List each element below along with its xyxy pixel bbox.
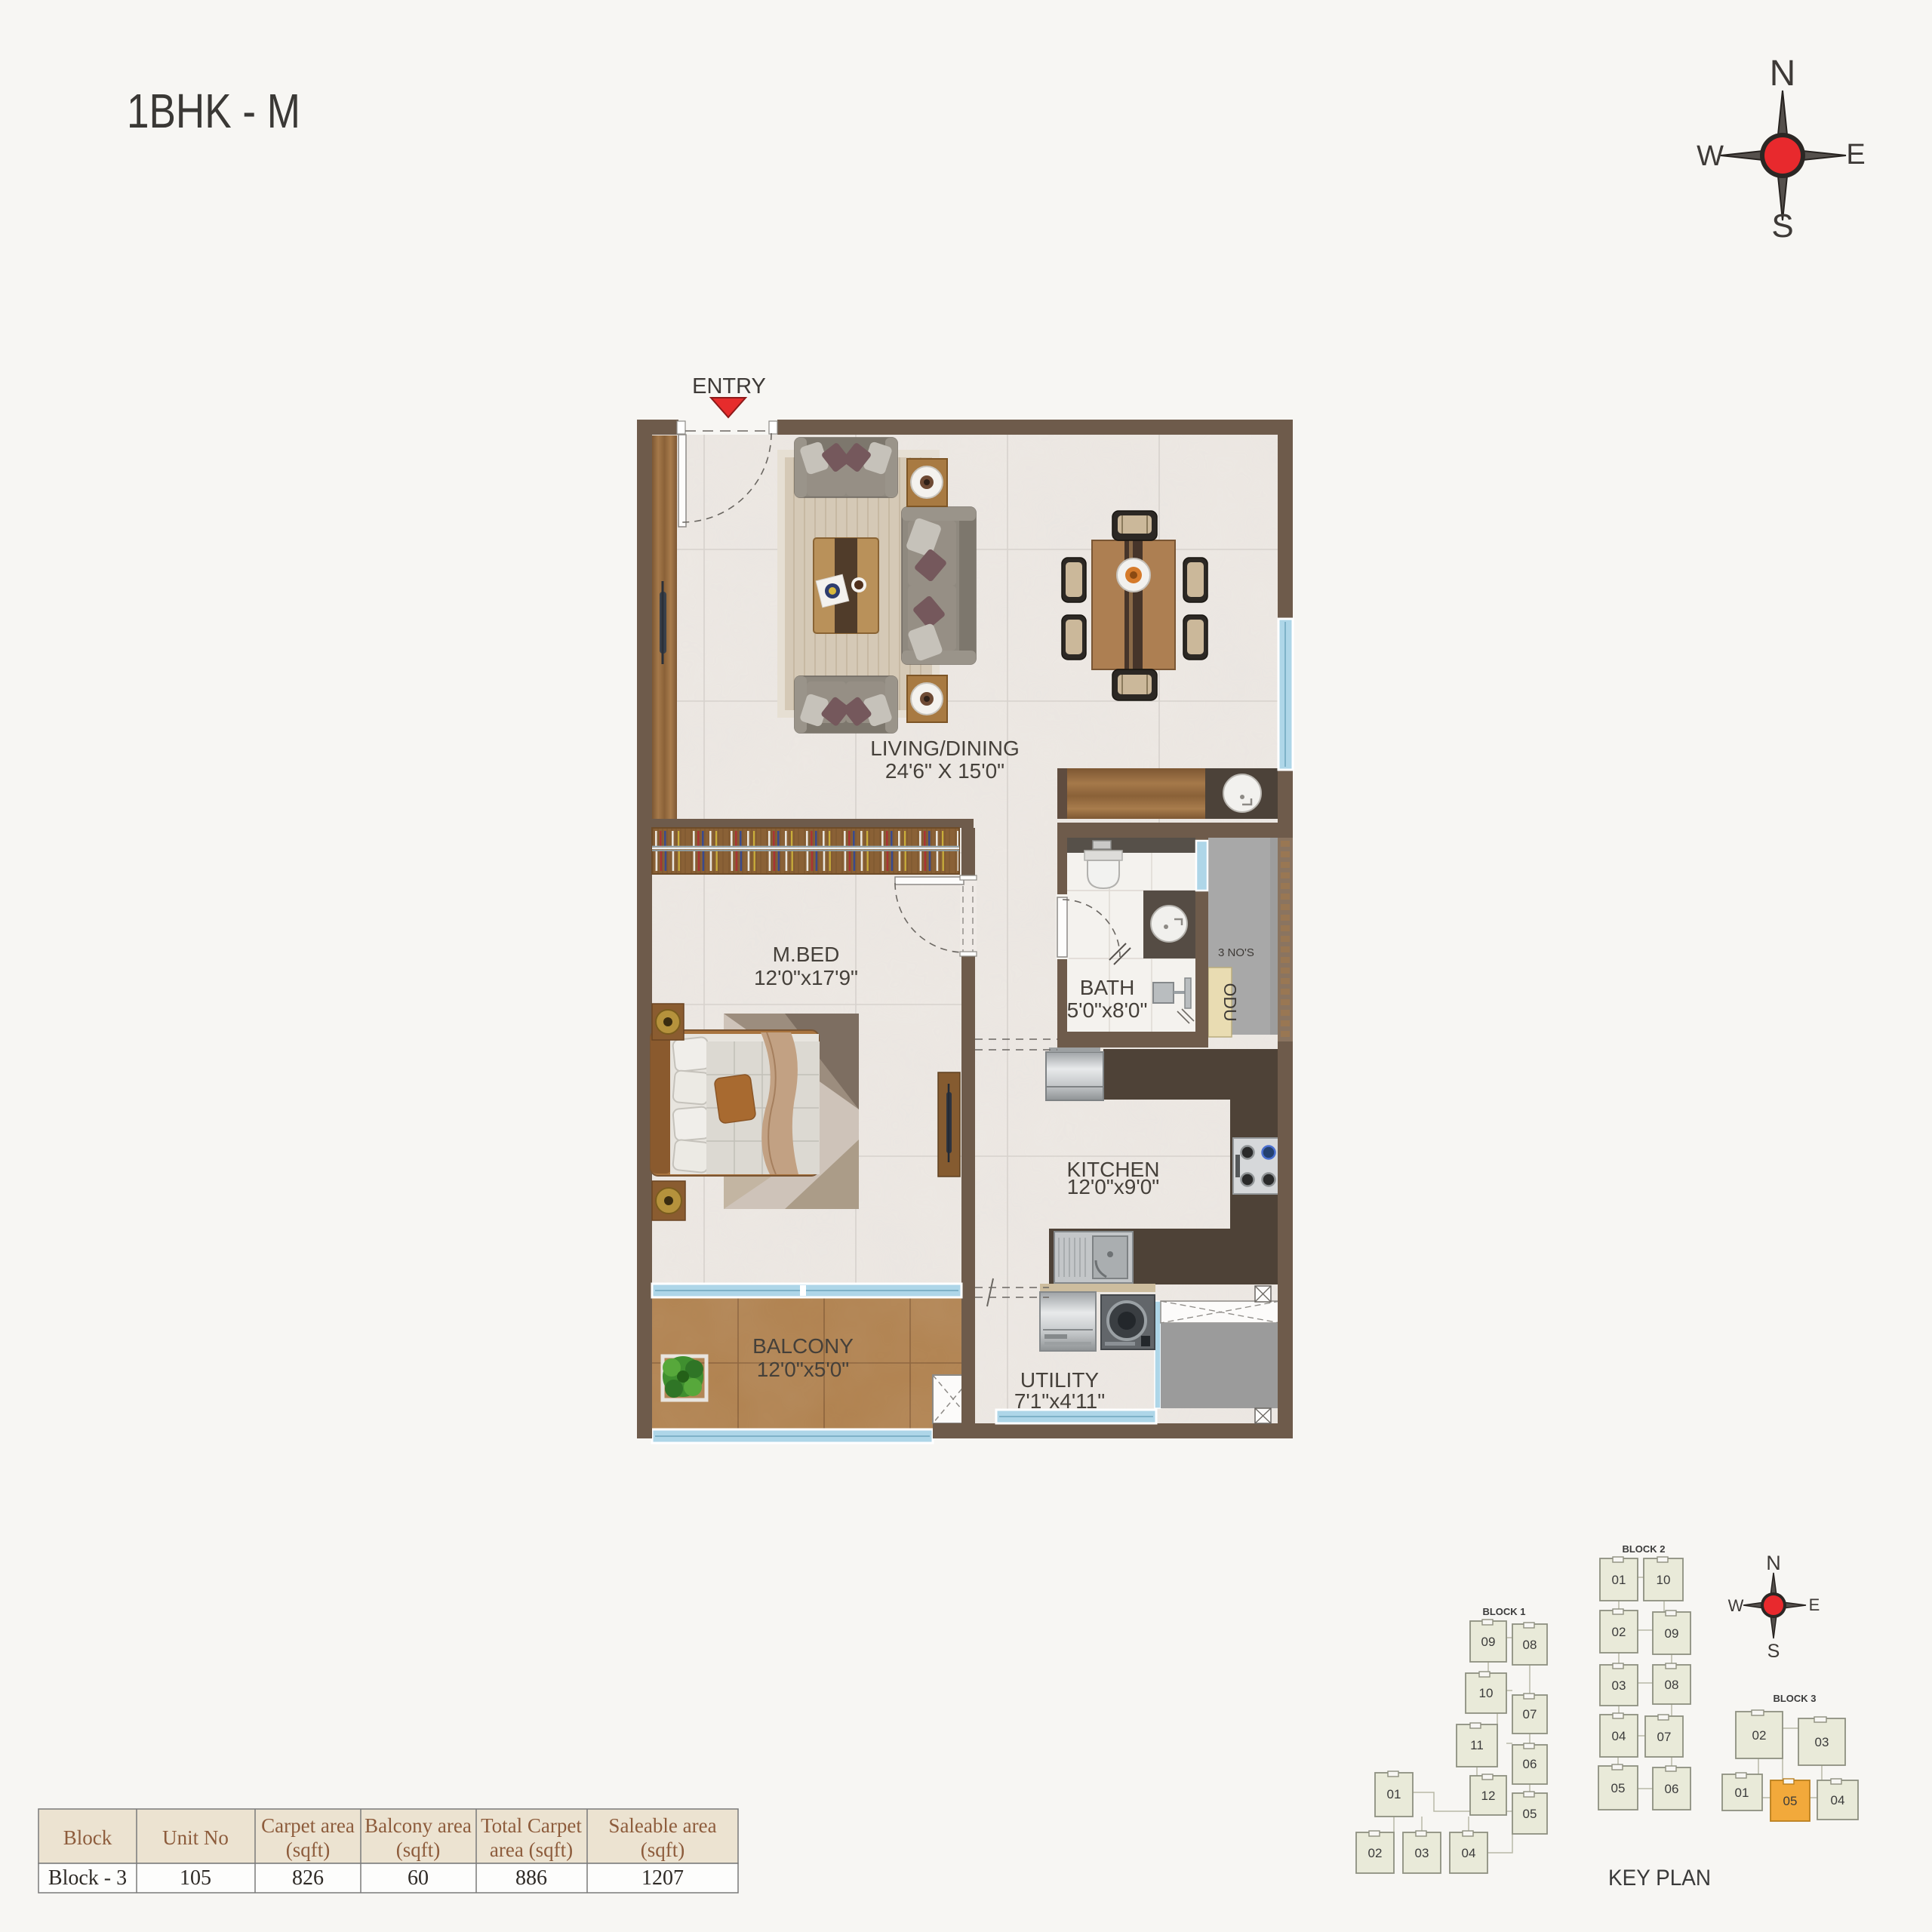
svg-text:W: W	[1697, 140, 1724, 172]
svg-text:01: 01	[1612, 1573, 1626, 1587]
svg-text:Saleable area: Saleable area	[608, 1814, 716, 1837]
svg-text:E: E	[1809, 1595, 1820, 1614]
svg-text:10: 10	[1479, 1686, 1494, 1700]
svg-text:3 NO'S: 3 NO'S	[1218, 946, 1254, 959]
svg-text:05: 05	[1523, 1807, 1537, 1821]
svg-text:KEY PLAN: KEY PLAN	[1608, 1866, 1711, 1890]
svg-text:UTILITY: UTILITY	[1020, 1368, 1100, 1392]
svg-text:S: S	[1767, 1641, 1780, 1662]
svg-text:24'6" X 15'0": 24'6" X 15'0"	[885, 759, 1004, 783]
svg-text:08: 08	[1523, 1638, 1537, 1652]
svg-text:W: W	[1728, 1596, 1744, 1615]
svg-text:ENTRY: ENTRY	[692, 374, 766, 398]
svg-text:S: S	[1771, 208, 1793, 245]
svg-text:09: 09	[1665, 1626, 1679, 1641]
svg-text:7'1"x4'11": 7'1"x4'11"	[1014, 1389, 1105, 1413]
svg-text:02: 02	[1752, 1728, 1767, 1743]
svg-text:BLOCK 1: BLOCK 1	[1482, 1606, 1525, 1617]
svg-text:E: E	[1846, 139, 1865, 171]
svg-text:Unit No: Unit No	[162, 1826, 229, 1849]
svg-text:12'0"x17'9": 12'0"x17'9"	[754, 966, 858, 989]
svg-text:07: 07	[1657, 1730, 1672, 1744]
svg-text:01: 01	[1735, 1786, 1749, 1800]
svg-text:03: 03	[1612, 1678, 1626, 1693]
svg-text:105: 105	[180, 1866, 211, 1890]
svg-text:11: 11	[1470, 1738, 1484, 1752]
svg-text:1207: 1207	[641, 1866, 684, 1890]
svg-text:826: 826	[292, 1866, 324, 1890]
svg-text:10: 10	[1657, 1573, 1671, 1587]
svg-text:Block - 3: Block - 3	[48, 1866, 127, 1890]
svg-text:BATH: BATH	[1080, 976, 1135, 999]
svg-text:60: 60	[408, 1866, 429, 1890]
svg-text:1BHK - M: 1BHK - M	[127, 84, 300, 138]
svg-text:03: 03	[1415, 1846, 1429, 1860]
svg-text:06: 06	[1523, 1757, 1537, 1771]
svg-text:04: 04	[1462, 1846, 1476, 1860]
svg-text:BLOCK 3: BLOCK 3	[1773, 1693, 1816, 1704]
svg-text:Carpet area: Carpet area	[261, 1814, 355, 1837]
svg-text:08: 08	[1665, 1678, 1679, 1692]
svg-text:M.BED: M.BED	[773, 943, 840, 966]
svg-text:06: 06	[1665, 1782, 1679, 1796]
svg-text:BLOCK 2: BLOCK 2	[1622, 1543, 1665, 1555]
svg-text:(sqft): (sqft)	[641, 1838, 685, 1861]
svg-text:886: 886	[515, 1866, 547, 1890]
svg-text:12'0"x5'0": 12'0"x5'0"	[757, 1358, 849, 1381]
svg-text:02: 02	[1612, 1625, 1626, 1639]
svg-text:ODU: ODU	[1220, 983, 1240, 1021]
svg-text:09: 09	[1481, 1635, 1496, 1649]
svg-text:LIVING/DINING: LIVING/DINING	[870, 737, 1020, 760]
svg-text:07: 07	[1523, 1707, 1537, 1721]
svg-text:03: 03	[1815, 1735, 1829, 1749]
svg-text:02: 02	[1368, 1846, 1383, 1860]
svg-text:Total Carpet: Total Carpet	[481, 1814, 582, 1837]
svg-text:12'0"x9'0": 12'0"x9'0"	[1067, 1175, 1159, 1198]
svg-text:12: 12	[1481, 1789, 1496, 1803]
svg-text:5'0"x8'0": 5'0"x8'0"	[1067, 998, 1148, 1022]
svg-text:01: 01	[1387, 1787, 1401, 1801]
svg-text:BALCONY: BALCONY	[752, 1334, 854, 1358]
svg-text:area (sqft): area (sqft)	[490, 1838, 573, 1861]
svg-text:04: 04	[1612, 1729, 1626, 1743]
svg-text:04: 04	[1831, 1793, 1845, 1807]
svg-text:N: N	[1770, 54, 1796, 94]
svg-text:(sqft): (sqft)	[286, 1838, 330, 1861]
svg-text:05: 05	[1611, 1781, 1626, 1795]
svg-text:N: N	[1766, 1552, 1781, 1574]
svg-text:05: 05	[1783, 1794, 1798, 1808]
svg-text:Block: Block	[63, 1826, 112, 1849]
svg-text:Balcony area: Balcony area	[365, 1814, 472, 1837]
svg-text:(sqft): (sqft)	[396, 1838, 440, 1861]
